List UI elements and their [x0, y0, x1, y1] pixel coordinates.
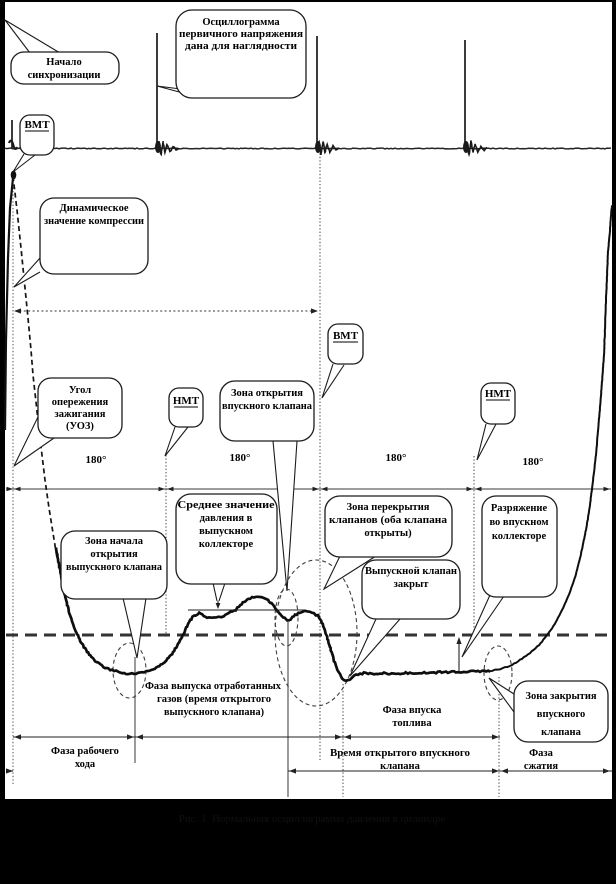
svg-text:клапана: клапана [380, 761, 420, 772]
svg-text:коллекторе: коллекторе [199, 539, 254, 550]
svg-text:Угол: Угол [69, 385, 91, 396]
svg-text:открытия: открытия [90, 549, 138, 560]
svg-text:Среднее значение: Среднее значение [178, 500, 275, 511]
svg-text:180°: 180° [86, 454, 107, 466]
svg-text:(УОЗ): (УОЗ) [66, 421, 94, 432]
svg-text:выпускного клапана): выпускного клапана) [164, 707, 264, 718]
svg-text:открыты): открыты) [364, 528, 412, 539]
svg-text:хода: хода [75, 759, 96, 770]
svg-text:ВМТ: ВМТ [24, 119, 50, 131]
svg-text:впускного: впускного [537, 709, 585, 720]
svg-text:Динамическое: Динамическое [60, 203, 129, 214]
svg-text:Осциллограмма: Осциллограмма [202, 17, 280, 28]
svg-text:Выпускной клапан: Выпускной клапан [365, 566, 457, 577]
svg-text:во впускном: во впускном [489, 517, 548, 528]
svg-text:180°: 180° [230, 452, 251, 464]
svg-text:Начало: Начало [46, 57, 81, 68]
svg-text:Фаза: Фаза [529, 748, 553, 759]
svg-text:опережения: опережения [52, 397, 109, 408]
svg-text:зажигания: зажигания [55, 409, 106, 420]
svg-text:ВМТ: ВМТ [333, 330, 359, 342]
svg-text:180°: 180° [386, 452, 407, 464]
svg-text:НМТ: НМТ [485, 388, 512, 400]
svg-text:Зона начала: Зона начала [85, 536, 144, 547]
svg-text:значение компрессии: значение компрессии [44, 216, 144, 227]
svg-text:Зона перекрытия: Зона перекрытия [347, 502, 430, 513]
svg-text:Зона закрытия: Зона закрытия [525, 691, 596, 702]
svg-text:Зона открытия: Зона открытия [231, 388, 303, 399]
svg-text:давления в: давления в [200, 513, 253, 524]
svg-text:НМТ: НМТ [173, 395, 200, 407]
svg-text:клапанов (оба клапана: клапанов (оба клапана [329, 515, 448, 526]
svg-text:Фаза рабочего: Фаза рабочего [51, 746, 119, 757]
svg-text:топлива: топлива [392, 718, 432, 729]
svg-text:Разряжение: Разряжение [491, 503, 548, 514]
svg-text:сжатия: сжатия [524, 761, 558, 772]
svg-text:Фаза впуска: Фаза впуска [383, 705, 443, 716]
svg-text:клапана: клапана [541, 727, 581, 738]
svg-text:выпускного клапана: выпускного клапана [66, 562, 163, 573]
svg-text:Фаза выпуска отработанных: Фаза выпуска отработанных [145, 681, 282, 692]
svg-text:первичного напряжения: первичного напряжения [179, 29, 303, 40]
svg-text:газов (время открытого: газов (время открытого [157, 694, 271, 705]
svg-text:впускного клапана: впускного клапана [222, 401, 313, 412]
svg-text:закрыт: закрыт [394, 579, 430, 590]
svg-text:180°: 180° [523, 456, 544, 468]
svg-text:коллекторе: коллекторе [492, 531, 547, 542]
svg-text:синхронизации: синхронизации [28, 70, 101, 81]
svg-text:выпускном: выпускном [199, 526, 253, 537]
svg-text:Рис. 1. Нормальная осциллограм: Рис. 1. Нормальная осциллограмма давлени… [179, 813, 446, 825]
svg-text:Время открытого впускного: Время открытого впускного [330, 748, 470, 759]
svg-text:дана для наглядности: дана для наглядности [185, 41, 297, 52]
